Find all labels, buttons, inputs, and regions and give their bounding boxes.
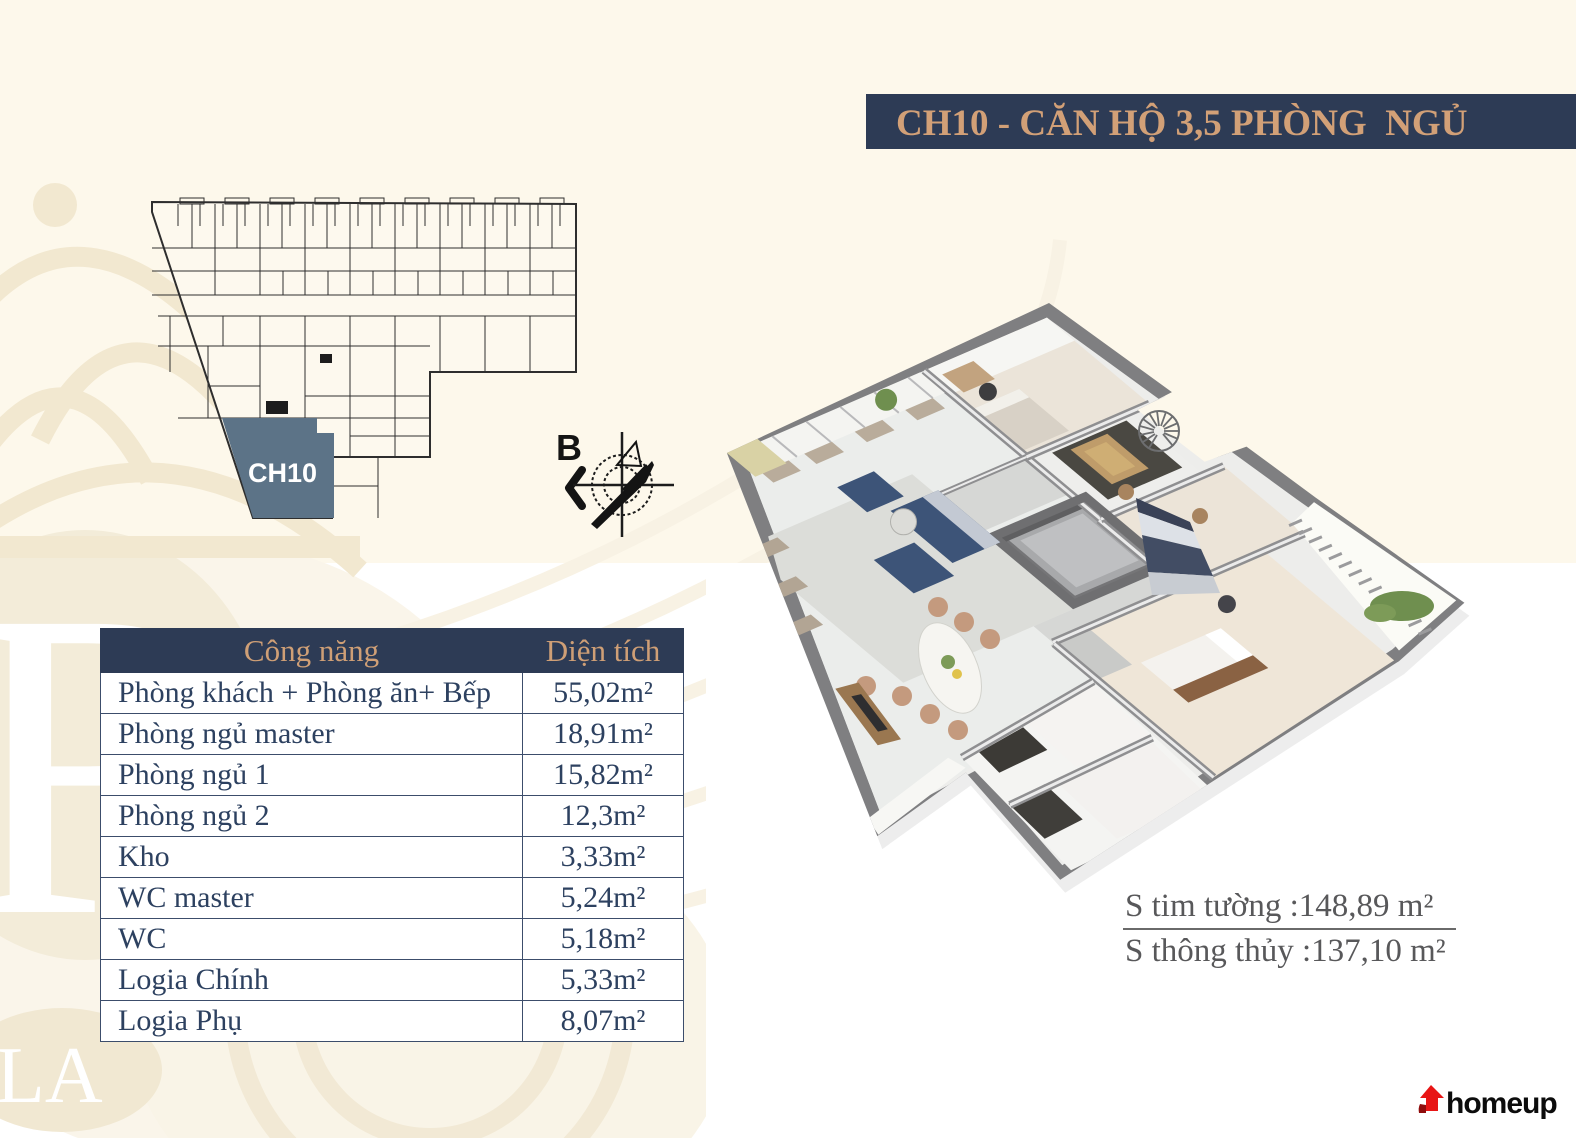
svg-text:homeup: homeup — [1446, 1087, 1557, 1120]
